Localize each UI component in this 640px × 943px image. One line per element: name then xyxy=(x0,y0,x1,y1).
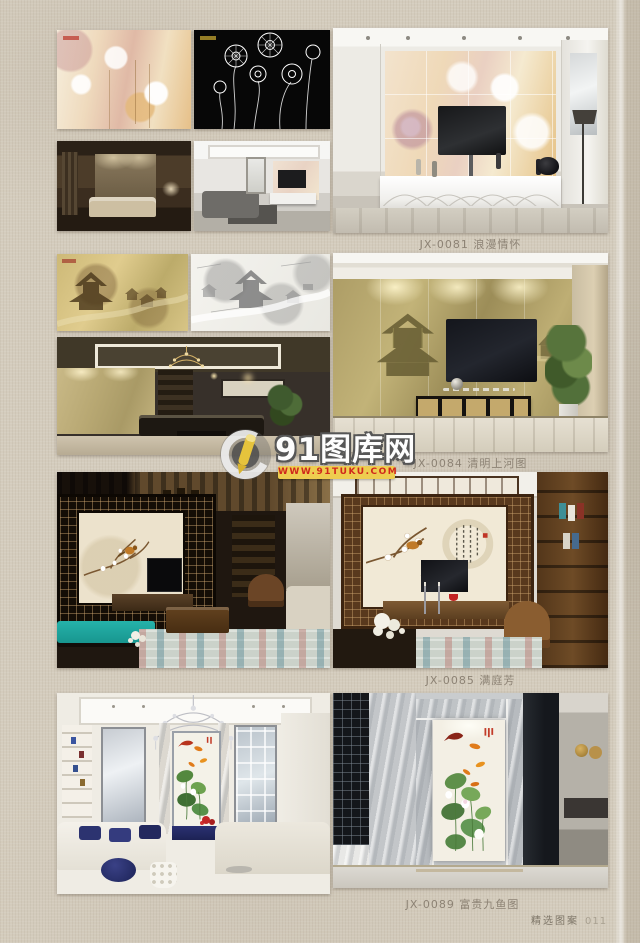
coffee-table-wood xyxy=(166,607,229,632)
gold-fan-decor xyxy=(575,744,588,757)
navy-pillows xyxy=(79,826,101,840)
right-window xyxy=(234,725,276,830)
dining-room-glimpse xyxy=(559,693,609,888)
navy-ottoman xyxy=(101,858,136,882)
thumb-room-living-gray xyxy=(194,141,330,231)
navy-console xyxy=(172,826,217,840)
red-bowl-decor xyxy=(449,594,458,601)
window-frame xyxy=(246,157,266,193)
floor-lamp-glow xyxy=(162,181,181,197)
door-column-left xyxy=(416,699,435,875)
dining-table-silhouette xyxy=(564,798,608,818)
tv-screen xyxy=(438,106,507,155)
watermark-logo-icon xyxy=(219,428,272,481)
tv-cabinet-wood xyxy=(383,601,510,619)
black-round-vase xyxy=(537,157,559,175)
catalog-page: JX-0081 浪漫情怀 xyxy=(0,0,640,943)
scan-edge-highlight xyxy=(614,0,626,943)
carved-white-stool xyxy=(150,862,177,888)
floor-border-strip xyxy=(416,869,523,872)
tv-screen xyxy=(421,560,468,591)
floor-lamp xyxy=(582,122,584,204)
tv-stand-neck xyxy=(469,155,473,176)
wall-panel xyxy=(95,154,157,201)
stem-lines xyxy=(135,60,136,124)
poppy-line-art xyxy=(194,30,330,129)
floor-reflection xyxy=(333,208,608,233)
dark-coffee-table xyxy=(333,629,416,668)
caption-jx-0089: JX-0089 富贵九鱼图 xyxy=(325,896,600,912)
black-lattice-panel xyxy=(333,693,369,845)
thumb-ancient-painting-sketch xyxy=(191,254,330,331)
mural-pavilion xyxy=(372,305,444,377)
watermark-url-bar: WWW.91TUKU.COM xyxy=(278,466,395,479)
thumb-floral-pattern-light xyxy=(57,30,191,129)
ceiling-molding xyxy=(333,253,608,279)
candlesticks xyxy=(424,586,426,614)
tv-screen xyxy=(147,558,182,591)
sofa xyxy=(89,197,156,217)
photo-chinese-study-room xyxy=(333,472,608,668)
photo-room-floral-tv-wall xyxy=(333,28,608,233)
caption-jx-0081: JX-0081 浪漫情怀 xyxy=(333,236,608,252)
ceiling-spots xyxy=(112,705,115,708)
book-spines xyxy=(559,503,566,519)
shelf-vases xyxy=(71,737,76,744)
photo-ancient-mural-tv-wall xyxy=(333,253,608,452)
hall-light-panel xyxy=(286,503,330,589)
thumb-floral-pattern-dark xyxy=(194,30,330,129)
tv-cabinet xyxy=(270,193,316,204)
watermark: 91图库网 WWW.91TUKU.COM xyxy=(219,426,409,484)
floor-lamp-shade xyxy=(572,110,597,124)
footer-page-number: 011 xyxy=(585,916,607,927)
caption-jx-0085: JX-0085 满庭芳 xyxy=(333,672,608,688)
photo-hallway-koi-mural xyxy=(333,693,608,888)
scan-edge-shadow xyxy=(626,0,640,943)
footer-label: 精选图案 xyxy=(531,916,579,927)
geometric-rug xyxy=(139,629,330,668)
wall-sconce-glows xyxy=(210,372,218,380)
white-sofa-corner xyxy=(286,586,330,633)
far-right-wall xyxy=(281,713,330,834)
geometric-rug xyxy=(405,637,543,668)
staircase xyxy=(158,370,193,415)
left-shelving xyxy=(62,725,92,817)
dark-slab-panel xyxy=(523,693,559,869)
marble-wall-left xyxy=(369,693,416,888)
marble-pilaster-left xyxy=(159,723,170,834)
round-back-chair xyxy=(248,574,283,607)
ceiling-spotlights xyxy=(366,36,370,40)
thumb-room-bedroom xyxy=(57,141,191,231)
tv-screen xyxy=(446,319,537,383)
page-footer: 精选图案011 xyxy=(531,912,607,927)
pavilion-art-color xyxy=(57,254,188,331)
decor-vases xyxy=(416,159,421,175)
chandelier-gold xyxy=(166,346,207,372)
pavilion-art-sketch xyxy=(191,254,330,331)
thumb-ancient-painting-color xyxy=(57,254,188,331)
tv-screen xyxy=(278,170,305,188)
sofa-group xyxy=(202,191,259,218)
cabinet-arch-pattern xyxy=(383,182,559,207)
watermark-site-name: 91图库网 xyxy=(275,424,416,469)
left-mirror-panel xyxy=(101,727,146,827)
plant xyxy=(264,384,305,429)
left-pilaster xyxy=(333,44,381,200)
red-flower-accent xyxy=(202,816,210,824)
koi-lotus-art xyxy=(435,722,504,859)
koi-art-content xyxy=(173,733,215,821)
silver-bird-decor xyxy=(226,866,252,873)
white-flowers xyxy=(131,631,140,640)
plant xyxy=(545,325,592,409)
photo-luxury-living-koi-panel xyxy=(57,693,330,894)
tiny-brand-mark xyxy=(63,36,79,40)
side-curtain xyxy=(62,152,78,215)
photo-chinese-living-room xyxy=(57,472,330,668)
